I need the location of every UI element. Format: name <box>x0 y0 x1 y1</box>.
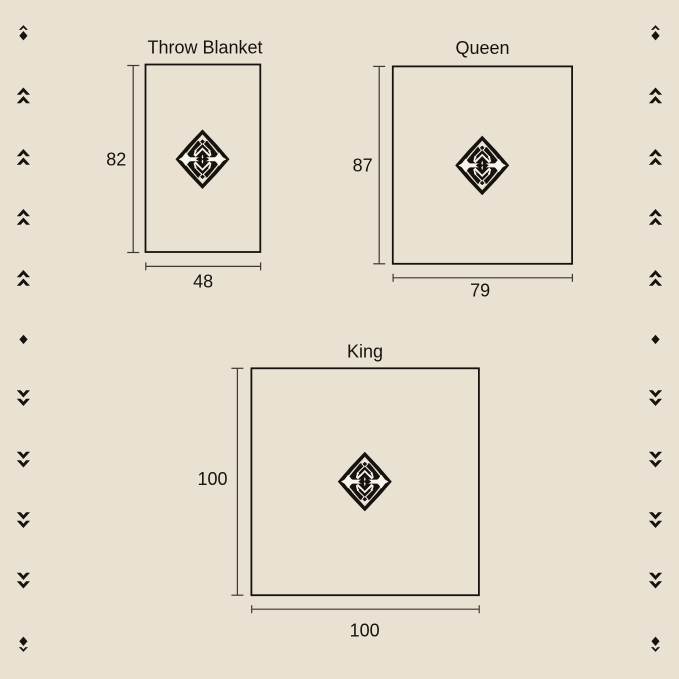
svg-text:Throw Blanket: Throw Blanket <box>147 37 262 57</box>
svg-text:100: 100 <box>197 469 227 489</box>
svg-text:79: 79 <box>470 281 490 301</box>
svg-text:King: King <box>347 342 383 362</box>
svg-text:48: 48 <box>193 272 213 292</box>
svg-text:Queen: Queen <box>455 38 509 58</box>
svg-text:82: 82 <box>106 149 126 169</box>
svg-text:100: 100 <box>350 621 380 641</box>
svg-text:87: 87 <box>353 156 373 176</box>
